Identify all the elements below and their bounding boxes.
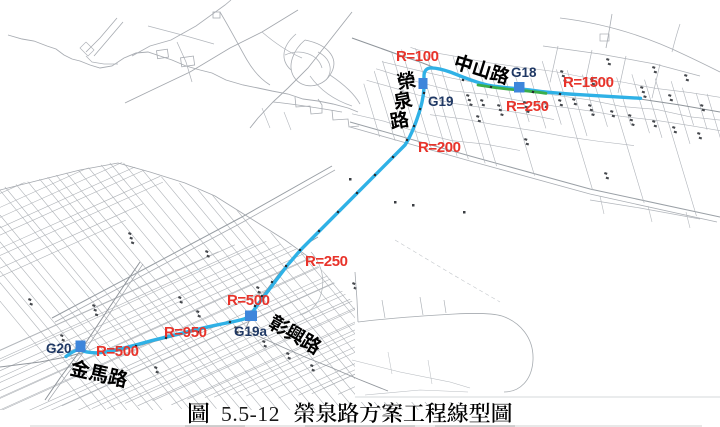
svg-text:G19a: G19a	[234, 324, 268, 339]
svg-text:R=500: R=500	[227, 292, 270, 309]
svg-text:R=250: R=250	[506, 98, 549, 115]
svg-text:R=200: R=200	[418, 139, 461, 156]
svg-text:G18: G18	[511, 65, 537, 80]
svg-text:R=100: R=100	[396, 48, 439, 65]
svg-text:R=250: R=250	[305, 253, 348, 270]
svg-text:R=1500: R=1500	[563, 74, 614, 91]
svg-text:R=500: R=500	[96, 343, 139, 360]
svg-text:5.5-12: 5.5-12	[221, 402, 280, 426]
svg-text:R=950: R=950	[164, 324, 207, 341]
svg-text:G20: G20	[46, 341, 72, 356]
svg-text:G19: G19	[428, 94, 454, 109]
